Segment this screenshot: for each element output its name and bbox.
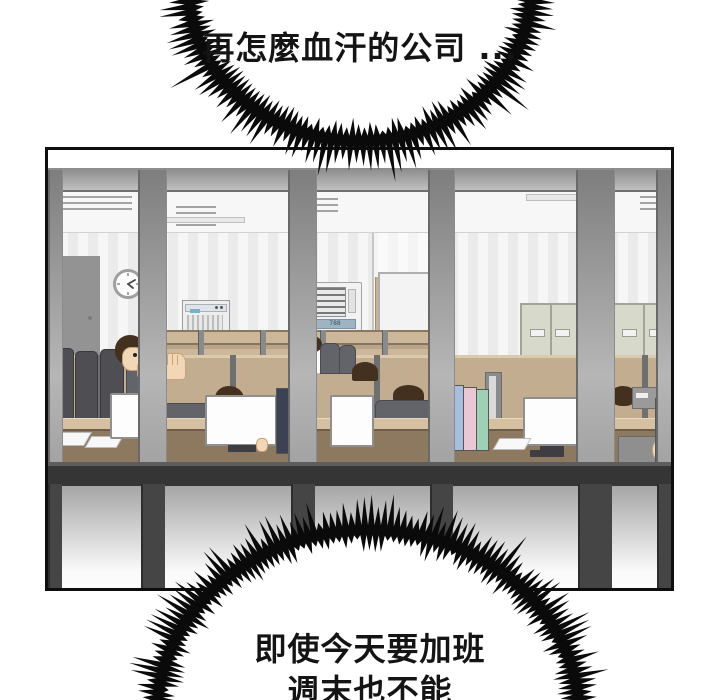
bottom-caption-line1: 即使今天要加班 [150, 628, 590, 670]
top-caption-text: 再怎麼血汗的公司 ... [202, 29, 518, 67]
door-nameplate [555, 329, 570, 337]
ceiling-vent-icon [176, 206, 216, 226]
copier-button-icon [215, 306, 218, 309]
top-caption: 再怎麼血汗的公司 ... [140, 26, 580, 70]
worker-spiky-hair [352, 362, 378, 381]
monitor [523, 397, 583, 446]
office-chair [320, 343, 340, 374]
window-mullion [138, 170, 167, 462]
finger-line [167, 355, 168, 365]
window-mullion-lower [48, 484, 62, 588]
window-mullion [656, 170, 671, 462]
keyboard [228, 445, 256, 452]
bottom-caption-line2: 週末也不能 [150, 670, 590, 700]
binder-pink [463, 387, 477, 451]
ac-display: 788 [314, 319, 356, 329]
office-chair [75, 351, 98, 424]
ceiling-vent-icon [60, 196, 132, 212]
window-mullion [48, 170, 63, 462]
copier-control-strip [185, 304, 227, 312]
bottom-caption: 即使今天要加班 週末也不能 [150, 628, 590, 700]
door-nameplate [622, 329, 637, 337]
worker-eye-icon [133, 353, 137, 357]
window-mullion-lower [291, 484, 315, 588]
window-mullion [428, 170, 455, 462]
copier-button-icon [220, 306, 223, 309]
window-mullion-lower [141, 484, 165, 588]
binder-green [476, 389, 489, 451]
window-mullion [288, 170, 317, 462]
printer-label [636, 393, 648, 398]
office-scene: 788 [48, 150, 671, 588]
door-handle-icon [88, 316, 92, 320]
ac-louver-grid [314, 287, 346, 317]
worker-arm [256, 438, 268, 452]
finger-line [172, 354, 173, 365]
window-mullion-lower [578, 484, 612, 588]
comic-page: 788 [0, 0, 720, 700]
window-mullion-lower [430, 484, 453, 588]
finger-line [177, 355, 178, 365]
monitor [330, 395, 374, 447]
keyboard [530, 450, 564, 457]
ac-side-slot [348, 289, 356, 313]
window-mullion [576, 170, 615, 462]
copier-display [190, 309, 200, 313]
door-nameplate [530, 329, 545, 337]
window-mullion-lower [657, 484, 671, 588]
